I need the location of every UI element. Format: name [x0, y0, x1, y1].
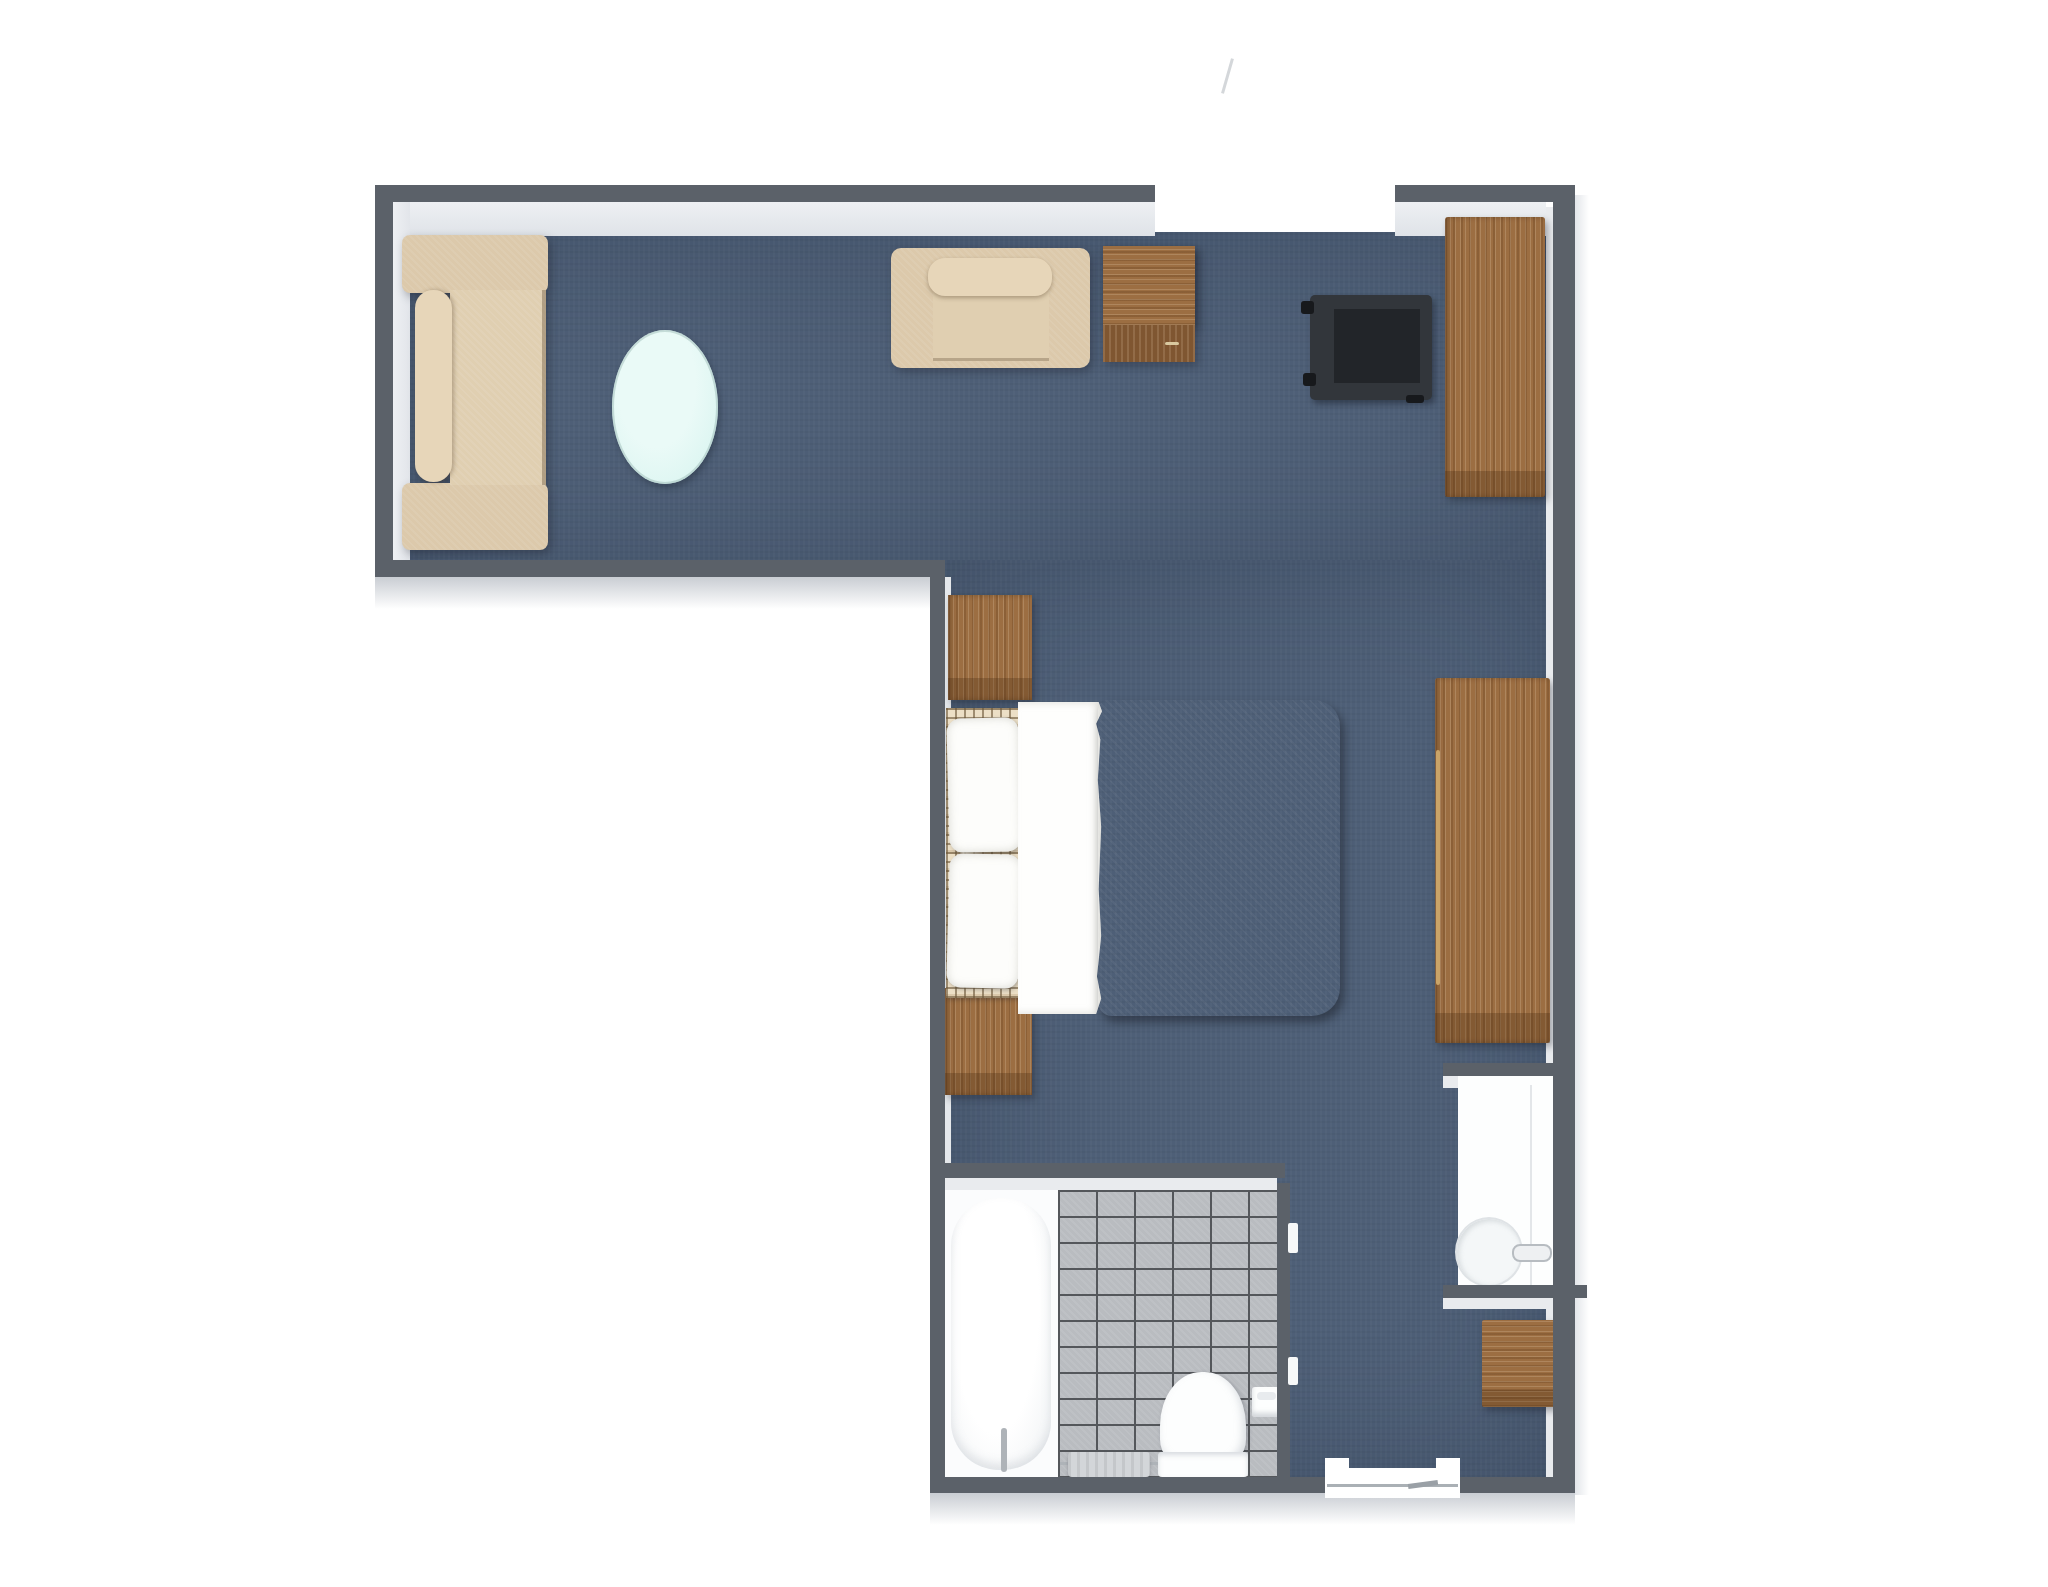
- entrance-door-swing-mark: [1221, 58, 1234, 93]
- south-door-threshold: [1327, 1484, 1458, 1487]
- dresser-long-handle: [1436, 750, 1440, 985]
- floor-plan: [0, 0, 2048, 1587]
- armchair: [891, 248, 1090, 368]
- south-door-opening: [1325, 1468, 1460, 1498]
- sink-niche-stub-bottom: [1443, 1285, 1587, 1298]
- toilet-tank: [1158, 1452, 1248, 1477]
- bed-pillow: [946, 717, 1021, 853]
- side-table-front: [1103, 325, 1195, 362]
- bedroom-west-wall: [930, 560, 945, 1490]
- armchair-seat: [933, 292, 1049, 361]
- living-south-wall: [375, 560, 945, 577]
- bathroom-north-wall: [945, 1163, 1285, 1178]
- sink-faucet: [1512, 1244, 1552, 1262]
- luggage-rack-foot: [1301, 301, 1314, 314]
- bathroom-door-tab: [1288, 1223, 1298, 1253]
- coffee-table: [612, 330, 718, 484]
- nightstand-lower-front-face: [945, 1073, 1032, 1095]
- side-table-handle: [1165, 342, 1179, 345]
- sofa-back-cushion: [415, 290, 452, 482]
- sofa: [402, 235, 548, 550]
- luggage-rack-panel: [1334, 309, 1420, 383]
- bed-sheet: [1018, 702, 1102, 1014]
- nightstand-upper: [948, 595, 1032, 700]
- side-table-top: [1103, 246, 1195, 325]
- north-wall-inner-face-left: [393, 202, 1155, 236]
- double-bed: [946, 700, 1340, 1016]
- bed-pillow: [946, 853, 1021, 989]
- sofa-armrest-bottom: [402, 483, 548, 550]
- nightstand-upper-front-face: [948, 678, 1032, 700]
- side-table: [1103, 246, 1195, 362]
- sink-niche-stub-bottom-face: [1443, 1298, 1562, 1309]
- sofa-seat-cushions: [450, 290, 546, 485]
- north-wall-left-segment: [375, 185, 1155, 202]
- towel: [1068, 1452, 1150, 1477]
- west-wall: [375, 185, 393, 577]
- dresser-long: [1435, 678, 1550, 1043]
- bed-duvet: [1098, 700, 1340, 1016]
- bathroom-door-tab: [1288, 1357, 1298, 1385]
- sink-niche-stub-top: [1443, 1063, 1562, 1076]
- dresser-long-front-face: [1435, 1013, 1550, 1043]
- armchair-back-cushion: [928, 258, 1052, 296]
- dresser-tall: [1445, 217, 1545, 497]
- dresser-tall-front-face: [1445, 471, 1545, 497]
- bathroom-north-wall-face: [945, 1178, 1277, 1190]
- south-door-jamb: [1325, 1458, 1349, 1470]
- luggage-rack-foot: [1303, 373, 1316, 386]
- living-south-wall-outer-face: [375, 577, 945, 609]
- bathtub-faucet: [1001, 1428, 1007, 1472]
- luggage-rack: [1310, 295, 1432, 400]
- east-wall-outer-face: [1575, 195, 1589, 1495]
- south-door-jamb: [1436, 1458, 1460, 1470]
- sofa-armrest-top: [402, 235, 548, 293]
- north-wall-right-segment: [1395, 185, 1575, 202]
- south-wall-outer-face: [930, 1493, 1575, 1525]
- toilet-paper-roll: [1257, 1392, 1276, 1400]
- south-wall: [930, 1477, 1575, 1493]
- luggage-rack-foot: [1406, 395, 1424, 403]
